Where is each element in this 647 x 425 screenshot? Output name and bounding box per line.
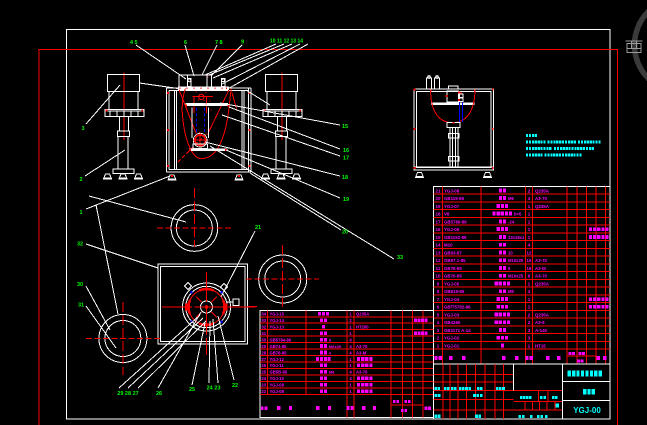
svg-text:GB76-85: GB76-85 [444,266,462,271]
svg-text:15: 15 [436,235,441,240]
svg-text:33: 33 [397,255,403,261]
svg-text:M10: M10 [444,243,453,248]
svg-text:GB93-87: GB93-87 [444,250,462,255]
svg-text:19: 19 [436,204,441,209]
svg-text:M6x25: M6x25 [329,344,342,349]
svg-text:A3-8: A3-8 [535,320,545,325]
svg-text:15: 15 [342,124,348,130]
svg-text:YGJ-08: YGJ-08 [270,389,285,394]
svg-text:GB97.1-85: GB97.1-85 [444,258,466,263]
svg-text:M10x25: M10x25 [508,258,524,263]
svg-text:30: 30 [261,337,266,342]
svg-text:32: 32 [261,324,266,329]
svg-text:7 8: 7 8 [215,40,223,46]
svg-text:23: 23 [261,383,266,388]
svg-text:14: 14 [436,243,441,248]
svg-text:21: 21 [436,188,441,193]
svg-text:M6: M6 [508,196,514,201]
svg-text:31: 31 [78,303,84,309]
svg-text:31: 31 [261,331,266,336]
svg-text:20: 20 [436,196,441,201]
svg-text:27: 27 [261,357,266,362]
svg-text:22: 22 [261,389,266,394]
svg-text:A3-70: A3-70 [356,370,368,375]
svg-text:YGJ-09: YGJ-09 [270,383,285,388]
svg-text:16: 16 [527,258,532,263]
svg-text:22: 22 [232,383,238,389]
svg-text:YGJ-06: YGJ-06 [444,227,460,232]
svg-text:Q235A: Q235A [535,204,550,209]
svg-text:A3-70: A3-70 [535,258,548,263]
svg-text:25: 25 [261,370,266,375]
svg-text:29: 29 [261,344,266,349]
svg-text:GB/T5782-86: GB/T5782-86 [444,305,471,310]
svg-text:GB5780-86: GB5780-86 [444,219,467,224]
svg-text:YGJ-08: YGJ-08 [444,188,460,193]
svg-text:GB74-85: GB74-85 [270,344,288,349]
svg-text:GB1152-89: GB1152-89 [444,235,467,240]
svg-text:YGJ-14: YGJ-14 [270,318,285,323]
svg-text:M8: M8 [329,370,335,375]
svg-text:Q235A: Q235A [356,312,369,317]
svg-text:12: 12 [527,250,532,255]
svg-text:26: 26 [261,363,266,368]
svg-text:A-140: A-140 [535,328,548,333]
svg-text:2: 2 [79,177,82,183]
svg-text:6: 6 [184,40,187,46]
svg-text:YGJ-11: YGJ-11 [270,363,285,368]
svg-text:29 28 27: 29 28 27 [117,391,138,397]
svg-text:YGJ-10: YGJ-10 [270,376,285,381]
svg-text:13x18x1: 13x18x1 [508,235,525,240]
svg-text:18: 18 [436,212,441,217]
svg-text:33: 33 [261,318,266,323]
svg-text:18: 18 [342,175,348,181]
svg-text:21: 21 [255,225,261,231]
svg-text:GB5784-86: GB5784-86 [270,337,292,342]
svg-text:30: 30 [77,282,83,288]
svg-text:YGJ-12: YGJ-12 [270,357,285,362]
svg-text:YGJ-07: YGJ-07 [444,204,460,209]
svg-text:16: 16 [436,227,441,232]
svg-text:b=5: b=5 [514,212,522,217]
svg-text:Q235A: Q235A [535,281,550,286]
svg-text:A3-70: A3-70 [535,274,548,279]
svg-text:YGJ-15: YGJ-15 [270,312,285,317]
svg-text:25: 25 [189,387,195,393]
svg-text:YGJ-03: YGJ-03 [444,312,460,317]
svg-text:34: 34 [261,312,266,317]
svg-text:A3-M: A3-M [356,350,367,355]
svg-text:10 11 12 13 14: 10 11 12 13 14 [270,39,303,45]
svg-text:A3-70: A3-70 [535,196,548,201]
svg-text:13: 13 [436,250,441,255]
svg-text:24 23: 24 23 [207,386,221,392]
svg-text:24: 24 [261,376,266,381]
svg-text:20: 20 [342,230,348,236]
svg-text:GB4265: GB4265 [444,320,461,325]
svg-text:12: 12 [436,258,441,263]
svg-text:GB819-85: GB819-85 [444,289,465,294]
svg-text:4 5: 4 5 [130,40,138,46]
svg-text:GB1171 A-14: GB1171 A-14 [444,328,471,333]
svg-text:Q235A: Q235A [535,312,550,317]
svg-text:10: 10 [436,274,441,279]
svg-text:M5: M5 [508,289,514,294]
svg-text:28: 28 [261,350,266,355]
svg-text:17: 17 [343,156,349,162]
svg-text:17: 17 [436,219,441,224]
svg-text:YGJ-01: YGJ-01 [444,343,460,348]
svg-text:9: 9 [241,40,244,46]
svg-text:A3-70: A3-70 [356,344,368,349]
svg-text:GB70-85: GB70-85 [444,274,462,279]
svg-text:26: 26 [156,391,162,397]
svg-text:19: 19 [343,197,349,203]
svg-text:GB5B-85: GB5B-85 [270,370,288,375]
svg-text:M10x25: M10x25 [508,274,524,279]
svg-text:HT200: HT200 [356,324,369,329]
svg-text:YGJ-05: YGJ-05 [444,281,460,286]
svg-text:16: 16 [343,148,349,154]
svg-text:3: 3 [81,126,84,132]
svg-text:A3-M: A3-M [535,266,546,271]
svg-text:V8: V8 [444,212,450,217]
svg-text:GB119-86: GB119-86 [444,196,465,201]
svg-text:1: 1 [79,210,82,216]
svg-text:Q235A: Q235A [535,188,550,193]
svg-text:YGJ-04: YGJ-04 [444,297,460,302]
svg-text:10: 10 [508,250,513,255]
svg-text:YGJ-00: YGJ-00 [573,406,601,415]
svg-text:YGJ-02: YGJ-02 [444,336,460,341]
svg-text:HT15: HT15 [535,343,546,348]
svg-text:32: 32 [77,242,83,248]
svg-text:GB78-85: GB78-85 [270,350,288,355]
svg-text:11: 11 [436,266,441,271]
svg-text:YGJ-13: YGJ-13 [270,324,285,329]
svg-text:16: 16 [527,266,532,271]
svg-text:-24: -24 [508,219,515,224]
